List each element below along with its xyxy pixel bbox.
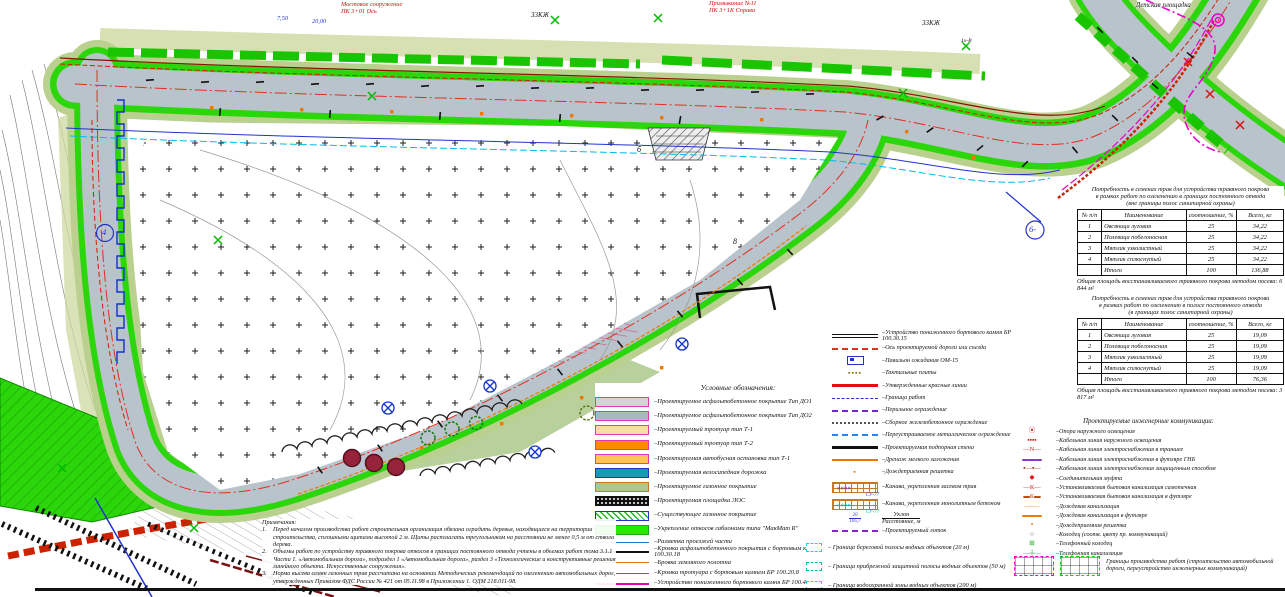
table-row: 2Полевица побегоносная2534,22 (1078, 232, 1284, 243)
line-symbol (832, 446, 878, 449)
ditch-symbol: »»»»СУ-77 (832, 499, 878, 510)
table-cell: Мятлик узколистный (1102, 243, 1186, 254)
legend-label: –Дождеприемная решетка (882, 469, 954, 475)
drawing-sheet: Мостовое сооружение ПК 3+01 Ось Примыкан… (0, 0, 1285, 597)
note-text: Норма высева семян газонных трав рассчит… (273, 570, 616, 585)
legend-item: —◦—–Дождевая канализация (1012, 502, 1285, 511)
table-cell: 19,09 (1236, 363, 1283, 374)
drain-grate-icon (760, 118, 763, 121)
table-cell: Мятлик сплюснутый (1102, 254, 1186, 265)
dimension-a: 7,50 (277, 16, 288, 23)
ditch-arrows: »»»» (837, 500, 851, 510)
legend-item: –Утвержденные красные линии (832, 380, 1014, 392)
legend-item: ▬▬▬–Кабельная линия электроснабжения в ф… (1012, 455, 1285, 464)
column-header: соотношение, % (1186, 319, 1236, 330)
table-cell: 2 (1078, 341, 1102, 352)
seed-table: № п/пНаименованиесоотношение, %Всего, кг… (1077, 209, 1284, 276)
bridge-label: Мостовое сооружение ПК 3+01 Ось (341, 2, 402, 16)
legend-label: –Соединительная муфта (1056, 476, 1122, 482)
legend-item: ⊞–Телефонный колодец (1012, 540, 1285, 549)
table-cell: Мятлик узколистный (1102, 352, 1186, 363)
drain-grate-icon (390, 110, 393, 113)
legend-item: –Проектируемая подпорная стена (832, 442, 1014, 454)
junction-label-line2: ПК 3+1К Справа (709, 7, 755, 14)
legend-item: –Проектируемый лоток (832, 525, 1014, 537)
surface-swatch (595, 496, 649, 506)
legend-item: ▪▪▪▪–Тактильные плиты (832, 367, 1014, 379)
drain-grate-icon (420, 446, 423, 449)
comm-icon: ▪—▪— (1012, 466, 1052, 473)
surface-swatch (595, 425, 649, 435)
table-cell: 34,22 (1236, 221, 1283, 232)
legend-item: –Существующее газонное покрытие (595, 509, 835, 523)
legend-label: –Колодец (соотв. цвету пр. коммуникаций) (1056, 532, 1168, 538)
legend-item: –Ось проектируемой дороги или съезда (832, 342, 1014, 354)
table-cell: 25 (1186, 363, 1236, 374)
note-number: 1. (262, 526, 273, 548)
legend-line-symbol (832, 398, 878, 399)
ditch-arrows: »»»» (837, 483, 851, 493)
water-boundary-icon (806, 543, 822, 552)
table-cell: Мятлик сплюснутый (1102, 363, 1186, 374)
table-title-line: Потребность в семенах трав для устройств… (1077, 186, 1284, 193)
line-symbol (832, 348, 878, 350)
legend-label: –Телефонный колодец (1056, 541, 1112, 547)
legend-label: –Кабельная линия электроснабжения в тран… (1056, 447, 1183, 453)
comm-icon: ▬▬▬ (1012, 513, 1052, 520)
legend-item: »»»»СУ-77–Канава, укрепленная монолитным… (832, 496, 1014, 513)
legend-label: –Устройство пониженного бортового камня … (882, 330, 1014, 343)
table-title-line: в рамках работ по озеленению в полосе по… (1077, 302, 1284, 309)
comm-icon: ⦿ (1012, 428, 1052, 435)
line-symbol (832, 398, 878, 399)
legend-line-symbol (832, 446, 878, 449)
legend-line-symbol (832, 434, 878, 436)
legend-label: –Дождеприемная решетка (1056, 523, 1126, 529)
legend-label: –Укрепление откосов габионами типа "МакМ… (654, 526, 798, 533)
legend-label: –Бровка земляного полотна (654, 560, 731, 567)
line-symbol (832, 459, 878, 461)
drain-grate-icon (480, 112, 483, 115)
table-cell: 34,22 (1236, 243, 1283, 254)
surface-swatch (595, 454, 649, 464)
table-cell: 76,36 (1236, 374, 1283, 385)
legend-label: –Устройство пониженного бортового камня … (654, 580, 817, 587)
legend-item: –Проектируемая площадка ЛОС (595, 494, 835, 508)
legend-item: –Проектируемое асфальтобетонное покрытие… (595, 395, 835, 409)
legend-item: –Кромка тротуара с бортовым камнем БР 10… (595, 568, 835, 578)
legend-item: –Устройство пониженного бортового камня … (832, 330, 1014, 342)
table-cell: Итого (1102, 374, 1186, 385)
legend-line-symbol (832, 530, 878, 532)
legend-line-symbol (832, 422, 878, 424)
table-cell: Овсяница луговая (1102, 221, 1186, 232)
table-row: 1Овсяница луговая2534,22 (1078, 221, 1284, 232)
drain-grate-icon (972, 156, 975, 159)
table-cell: Овсяница луговая (1102, 330, 1186, 341)
table-cell: 4 (1078, 363, 1102, 374)
slope-symbol: 20105,7 (832, 513, 878, 525)
callout-6-label: 6- (1029, 224, 1036, 234)
table-cell: Полевица побегоносная (1102, 341, 1186, 352)
column-header: Всего, кг (1236, 210, 1283, 221)
legend-label: –Проектируемое газонное покрытие (654, 484, 757, 491)
notes-list: 1.Перед началом производства работ строи… (262, 526, 616, 585)
table-row: 3Мятлик узколистный2534,22 (1078, 243, 1284, 254)
legend-item: –Граница работ (832, 392, 1014, 404)
legend-label: –Утвержденные красные линии (882, 383, 967, 389)
legend-item: —К—–Устанавливаемая бытовая канализация … (1012, 483, 1285, 492)
legend-label: –Проектируемый лоток (882, 528, 946, 534)
legend-label: –Существующее газонное покрытие (654, 512, 756, 519)
table-row: 4Мятлик сплюснутый2534,22 (1078, 254, 1284, 265)
legend-item: –Проектируемое асфальтобетонное покрытие… (595, 409, 835, 423)
legend-label: –Проектируемая велосипедная дорожка (654, 470, 766, 477)
legend-label: –Устанавливаемая бытовая канализация сам… (1056, 485, 1196, 491)
table-cell: 25 (1186, 232, 1236, 243)
comm-icon: —К— (1012, 485, 1052, 492)
seed-table-1: Потребность в семенах трав для устройств… (1077, 186, 1284, 293)
note-item: 1.Перед началом производства работ строи… (262, 526, 616, 548)
comm-icon: ◆ (1012, 475, 1052, 482)
surface-swatch (595, 468, 649, 478)
cross-mark (551, 16, 559, 24)
callout-4-label: 4 (102, 227, 106, 237)
building-label-right: 33КЖ (922, 20, 940, 28)
table-row: 2Полевица побегоносная2519,09 (1078, 341, 1284, 352)
legend-label: –Ось проектируемой дороги или съезда (882, 345, 986, 351)
legend-label: –Перильное ограждение (882, 407, 947, 413)
table-footer: Общая площадь восстанавливаемого травяно… (1077, 387, 1284, 401)
legend-item: –Проектируемая автобусная остановка тип … (595, 452, 835, 466)
legend-item: »»»»СУ-77–Канава, укрепленная засевом тр… (832, 479, 1014, 496)
line-symbol (832, 384, 878, 387)
legend-symbols-panel: –Устройство пониженного бортового камня … (832, 330, 1014, 537)
sheet-bottom-border (35, 588, 1285, 591)
note-item: 2.Объемы работ по устройству травяного п… (262, 548, 616, 570)
legend-label: –Канава, укрепленная монолитным бетоном (882, 501, 1000, 507)
legend-item: –Кромка асфальтобетонного покрытия с бор… (595, 547, 835, 557)
table-cell: Полевица побегоносная (1102, 232, 1186, 243)
legend-label: –Устанавливаемая бытовая канализация в ф… (1056, 494, 1192, 500)
drain-grate-icon (905, 130, 908, 133)
slope-example: 20105,7 (849, 513, 860, 525)
surface-swatch (595, 482, 649, 492)
drain-grate-icon (210, 106, 213, 109)
double-symbol (832, 334, 878, 338)
work-boundary-rect-comms (1060, 556, 1100, 576)
table-title-line: Потребность в семенах трав для устройств… (1077, 295, 1284, 302)
table-row: Итого10076,36 (1078, 374, 1284, 385)
comm-icon: ▬К▬ (1012, 494, 1052, 501)
work-boundary-rect-road (1014, 556, 1054, 576)
work-boundary-label: Границы производства работ (строительств… (1106, 559, 1285, 573)
legend-label: –Кабельная линия электроснабжения в футл… (1056, 457, 1195, 463)
legend-item: ◆–Соединительная муфта (1012, 474, 1285, 483)
table-cell: 25 (1186, 341, 1236, 352)
grate-symbol: ▪ (832, 468, 878, 476)
table-cell: 3 (1078, 352, 1102, 363)
legend-label: –Тактильные плиты (882, 370, 936, 376)
pavilion-icon (847, 356, 864, 365)
table-row: 3Мятлик узколистный2519,09 (1078, 352, 1284, 363)
legend-comms-list: ⦿–Опора наружного освещения▪▪▪▪–Кабельна… (1012, 427, 1285, 558)
surface-swatch (595, 440, 649, 450)
legend-item: –Переустраиваемое металлическое огражден… (832, 429, 1014, 441)
legend-label: –Кабельная линия наружного освещения (1056, 438, 1161, 444)
table-row: 4Мятлик сплюснутый2519,09 (1078, 363, 1284, 374)
ditch-icon: »»»»СУ-77 (832, 499, 878, 510)
legend-item: –Проектируемая велосипедная дорожка (595, 466, 835, 480)
playground-label: Детская площадка (1136, 2, 1191, 9)
table-cell: 1 (1078, 330, 1102, 341)
column-header: соотношение, % (1186, 210, 1236, 221)
comm-icon: ▪▪▪▪ (1012, 438, 1052, 445)
legend-comms-panel: Проектируемые инженерные коммуникации: ⦿… (1012, 418, 1285, 558)
legend-title: Условные обозначения: (595, 383, 835, 392)
legend-label: –Дождевая канализация в футляре (1056, 513, 1147, 519)
grate-icon: ▪ (853, 468, 856, 476)
legend-label: –Кабельная линия электроснабжения защище… (1056, 466, 1216, 472)
legend-label: – Граница береговой полосы водных объект… (828, 544, 969, 551)
drain-grate-icon (500, 422, 503, 425)
note-text: Перед началом производства работ строите… (273, 526, 616, 548)
drain-grate-icon (570, 114, 573, 117)
comms-title: Проектируемые инженерные коммуникации: (1012, 418, 1285, 425)
legend-label: –Павильон ожидания ОМ-15 (882, 358, 958, 364)
legend-item: –Проектируемый тротуар тип Т-1 (595, 423, 835, 437)
notes-block: Примечания: 1.Перед началом производства… (262, 519, 616, 585)
table-header-row: № п/пНаименованиесоотношение, %Всего, кг (1078, 210, 1284, 221)
tactile-icon: ▪▪▪▪ (848, 369, 862, 377)
ditch-icon: »»»»СУ-77 (832, 482, 878, 493)
legend-label: –Проектируемый тротуар тип Т-2 (654, 441, 753, 448)
legend-label: –Проектируемая площадка ЛОС (654, 498, 745, 505)
line-symbol (832, 422, 878, 424)
comm-icon: ⊞ (1012, 541, 1052, 548)
point-b-label: б (637, 146, 641, 155)
table-cell: 100 (1186, 374, 1236, 385)
legend-item: ▪—▪—–Кабельная линия электроснабжения за… (1012, 465, 1285, 474)
building-label-left: 33КЖ (531, 12, 549, 20)
drain-grate-icon (300, 108, 303, 111)
table-title-line: (в границах полос санитарной охраны) (1077, 309, 1284, 316)
table-cell (1078, 265, 1102, 276)
surface-swatch (595, 397, 649, 407)
legend-label: –Канава, укрепленная засевом трав (882, 484, 976, 490)
comm-icon: ○ (1012, 532, 1052, 539)
notes-heading: Примечания: (262, 519, 616, 526)
note-number: 2. (262, 548, 273, 570)
table-cell: 25 (1186, 254, 1236, 265)
tree-tag-label: 1х-В (961, 38, 972, 44)
point-8-label: 8 (733, 238, 737, 247)
table-cell: 19,09 (1236, 330, 1283, 341)
ditch-symbol: »»»»СУ-77 (832, 482, 878, 493)
column-header: Наименование (1102, 210, 1186, 221)
legend-item: ▬▬▬–Дождевая канализация в футляре (1012, 512, 1285, 521)
legend-item: – Граница водоохранной зоны водных объек… (806, 576, 1056, 595)
table-cell: 3 (1078, 243, 1102, 254)
legend-label: –Кромка тротуара с бортовым камнем БР 10… (654, 570, 799, 577)
legend-label: –Дождевая канализация (1056, 504, 1119, 510)
bridge-label-line2: ПК 3+01 Ось (341, 8, 377, 15)
table-cell: 19,09 (1236, 352, 1283, 363)
station-tick (751, 91, 759, 93)
table-cell: 34,22 (1236, 232, 1283, 243)
tactile-symbol: ▪▪▪▪ (832, 369, 878, 377)
legend-label: –Переустраиваемое металлическое огражден… (882, 432, 1011, 438)
table-cell: 4 (1078, 254, 1102, 265)
table-cell: 34,22 (1236, 254, 1283, 265)
legend-item: –Проектируемый тротуар тип Т-2 (595, 438, 835, 452)
table-row: Итого100136,88 (1078, 265, 1284, 276)
legend-item: —N—–Кабельная линия электроснабжения в т… (1012, 446, 1285, 455)
legend-item: –Укрепление откосов габионами типа "МакМ… (595, 523, 835, 537)
comm-icon: —◦— (1012, 504, 1052, 511)
note-text: Объемы работ по устройству травяного пок… (273, 548, 616, 570)
legend-label: –Опора наружного освещения (1056, 429, 1135, 435)
legend-surfaces-list: –Проектируемое асфальтобетонное покрытие… (595, 395, 835, 589)
legend-item: ○–Колодец (соотв. цвету пр. коммуникаций… (1012, 530, 1285, 539)
table-title-line: в рамках работ по озеленению в границах … (1077, 193, 1284, 200)
legend-label: –Проектируемый тротуар тип Т-1 (654, 427, 753, 434)
table-cell: 1 (1078, 221, 1102, 232)
table-header-row: № п/пНаименованиесоотношение, %Всего, кг (1078, 319, 1284, 330)
table-row: 1Овсяница луговая2519,09 (1078, 330, 1284, 341)
column-header: Всего, кг (1236, 319, 1283, 330)
line-symbol (832, 530, 878, 532)
line-symbol (832, 410, 878, 412)
legend-line-symbol (832, 348, 878, 350)
table-title-line: (вне границы полос санитарной охраны) (1077, 200, 1284, 207)
legend-label: – Граница прибрежной защитной полосы вод… (828, 563, 1005, 570)
column-header: № п/п (1078, 319, 1102, 330)
double-line (832, 334, 878, 338)
seed-table: № п/пНаименованиесоотношение, %Всего, кг… (1077, 318, 1284, 385)
table-cell: 25 (1186, 243, 1236, 254)
table-cell: 2 (1078, 232, 1102, 243)
legend-item: ▬К▬–Устанавливаемая бытовая канализация … (1012, 493, 1285, 502)
legend-item: –Дренаж мелкого заложения (832, 454, 1014, 466)
ditch-tag: СУ-77 (866, 493, 879, 498)
legend-item: –Перильное ограждение (832, 404, 1014, 416)
seed-table-2: Потребность в семенах трав для устройств… (1077, 295, 1284, 402)
legend-label: –Проектируемая подпорная стена (882, 445, 974, 451)
table-cell (1078, 374, 1102, 385)
comm-icon: ▬▬▬ (1012, 457, 1052, 464)
table-cell: 19,09 (1236, 341, 1283, 352)
table-cell: 136,88 (1236, 265, 1283, 276)
legend-line-symbol (832, 384, 878, 387)
legend-item: –Павильон ожидания ОМ-15 (832, 355, 1014, 367)
legend-label: –Сборное железобетонное ограждение (882, 420, 987, 426)
legend-item: ⦿–Опора наружного освещения (1012, 427, 1285, 436)
table-cell: 25 (1186, 221, 1236, 232)
note-item: 3.Норма высева семян газонных трав рассч… (262, 570, 616, 585)
column-header: № п/п (1078, 210, 1102, 221)
slope-label: УклонРасстояние, м (882, 512, 920, 526)
legend-label: –Проектируемое асфальтобетонное покрытие… (654, 413, 812, 420)
legend-item: ▪–Дождеприемная решетка (1012, 521, 1285, 530)
legend-line-symbol (832, 410, 878, 412)
water-boundary-icon (806, 562, 822, 571)
drain-grate-icon (660, 366, 663, 369)
station-tick (806, 93, 814, 95)
table-cell: Итого (1102, 265, 1186, 276)
table-cell: 25 (1186, 352, 1236, 363)
line-symbol (832, 434, 878, 436)
comm-icon: —N— (1012, 447, 1052, 454)
drain-grate-icon (660, 116, 663, 119)
cross-mark (654, 14, 662, 22)
drain-grate-icon (580, 396, 583, 399)
legend-item: –Проектируемое газонное покрытие (595, 480, 835, 494)
legend-item: ▪▪▪▪–Кабельная линия наружного освещения (1012, 436, 1285, 445)
table-cell: 100 (1186, 265, 1236, 276)
legend-label: –Проектируемая автобусная остановка тип … (654, 456, 790, 463)
surface-swatch (595, 411, 649, 421)
table-cell: 25 (1186, 330, 1236, 341)
note-number: 3. (262, 570, 273, 585)
legend-item: ▪–Дождеприемная решетка (832, 466, 1014, 478)
junction-label: Примыкание №11 ПК 3+1К Справа (709, 1, 756, 15)
legend-item: 20105,7УклонРасстояние, м (832, 513, 1014, 525)
station-tick (696, 89, 704, 91)
legend-surfaces-panel: Условные обозначения: –Проектируемое асф… (595, 383, 835, 589)
pavilion-symbol (832, 356, 878, 365)
legend-item: –Сборное железобетонное ограждение (832, 417, 1014, 429)
legend-label: –Дренаж мелкого заложения (882, 457, 959, 463)
work-boundary-note: Границы производства работ (строительств… (1014, 556, 1285, 576)
column-header: Наименование (1102, 319, 1186, 330)
comm-icon: ▪ (1012, 522, 1052, 529)
legend-label: –Граница работ (882, 395, 925, 401)
dimension-b: 20,00 (312, 19, 326, 26)
legend-line-symbol (832, 459, 878, 461)
legend-item: –Бровка земляного полотна (595, 558, 835, 568)
legend-label: –Проектируемое асфальтобетонное покрытие… (654, 399, 812, 406)
table-footer: Общая площадь восстанавливаемого травяно… (1077, 278, 1284, 292)
